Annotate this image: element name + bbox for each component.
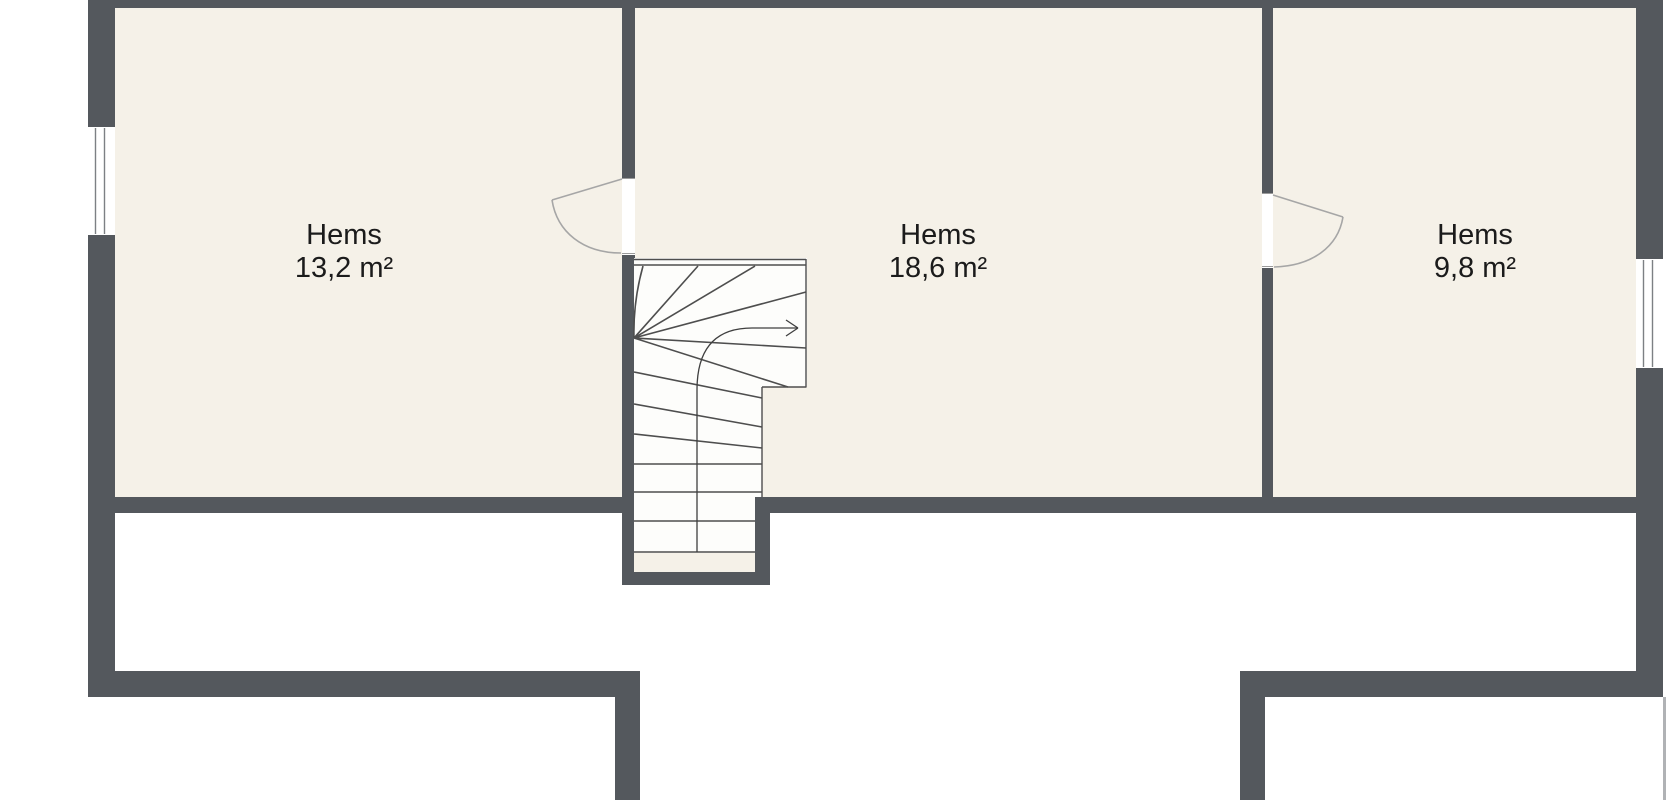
window-left xyxy=(88,127,115,235)
wall-lower-left-horizontal xyxy=(88,671,640,697)
wall-interior-1-upper xyxy=(622,0,635,178)
room-label-middle: Hems 18,6 m² xyxy=(838,219,1038,285)
wall-interior-2-lower xyxy=(1262,268,1273,513)
room-label-left: Hems 13,2 m² xyxy=(244,219,444,285)
wall-bottom-right-segment xyxy=(755,497,1663,513)
wall-interior-2-upper xyxy=(1262,0,1273,193)
room-label-right: Hems 9,8 m² xyxy=(1375,219,1575,285)
edge-line-lower-right xyxy=(1663,697,1666,800)
floor-plan-drawing xyxy=(0,0,1670,800)
door-opening xyxy=(1262,193,1273,268)
wall-bottom-left-segment xyxy=(88,497,635,513)
wall-top xyxy=(88,0,1663,8)
window-frame xyxy=(88,127,115,235)
door-opening xyxy=(622,178,635,254)
wall-stair-shaft-bottom xyxy=(622,572,770,585)
room-area: 9,8 m² xyxy=(1375,252,1575,285)
wall-lower-right-vertical xyxy=(1240,671,1265,800)
wall-interior-1-lower xyxy=(622,255,635,585)
wall-stair-shaft-right xyxy=(755,497,770,585)
room-name: Hems xyxy=(838,219,1038,252)
room-area: 13,2 m² xyxy=(244,252,444,285)
wall-lower-right-horizontal xyxy=(1240,671,1663,697)
room-name: Hems xyxy=(1375,219,1575,252)
stair-bottom-landing xyxy=(634,553,755,572)
room-area: 18,6 m² xyxy=(838,252,1038,285)
wall-lower-left-vertical xyxy=(615,671,640,800)
room-name: Hems xyxy=(244,219,444,252)
wall-left-outer xyxy=(88,0,115,697)
window-frame xyxy=(1636,259,1663,368)
window-right xyxy=(1636,259,1663,368)
floor-plan: Hems 13,2 m² Hems 18,6 m² Hems 9,8 m² xyxy=(0,0,1670,800)
